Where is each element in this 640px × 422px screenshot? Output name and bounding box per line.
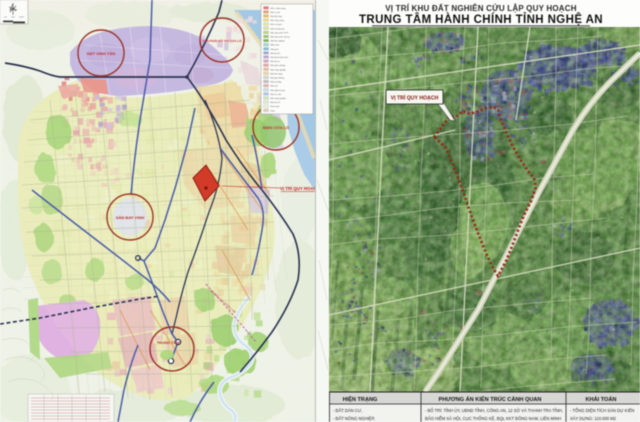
svg-text:Khác: Khác (271, 110, 276, 112)
svg-text:TRUNG TÂM: TRUNG TÂM (157, 340, 180, 345)
svg-text:Đất y tế: Đất y tế (271, 85, 279, 88)
svg-text:Đất kho tàng: Đất kho tàng (271, 72, 284, 75)
svg-text:Đất du lịch: Đất du lịch (271, 52, 282, 55)
svg-text:KĐT VINH TÂN: KĐT VINH TÂN (87, 51, 115, 56)
svg-text:Đất dự trữ: Đất dự trữ (271, 101, 281, 104)
svg-text:PHƯƠNG ÁN KIẾN TRÚC CẢNH QUAN: PHƯƠNG ÁN KIẾN TRÚC CẢNH QUAN (439, 396, 542, 403)
svg-text:KHÁI TOÁN: KHÁI TOÁN (586, 396, 617, 403)
svg-text:- ĐẤT NÔNG NGHIỆP,: - ĐẤT NÔNG NGHIỆP, (333, 416, 375, 421)
svg-text:Đất cây xanh TDTT: Đất cây xanh TDTT (271, 31, 290, 34)
svg-text:Đất hỗn hợp: Đất hỗn hợp (271, 15, 283, 18)
svg-text:Đất hạ tầng: Đất hạ tầng (271, 81, 283, 84)
svg-text:VỊ TRÍ QUY HOẠCH: VỊ TRÍ QUY HOẠCH (280, 186, 320, 191)
svg-text:Đất nghĩa trang: Đất nghĩa trang (271, 89, 286, 92)
svg-text:TRUNG TÂM HÀNH CHÍNH TỈNH NGHỆ: TRUNG TÂM HÀNH CHÍNH TỈNH NGHỆ AN (359, 13, 603, 26)
svg-text:Đất ở hiện trạng: Đất ở hiện trạng (271, 7, 287, 10)
svg-text:Ranh giới: Ranh giới (271, 106, 281, 108)
svg-text:- TỔNG DIỆN TÍCH SÀN DỰ KIẾN: - TỔNG DIỆN TÍCH SÀN DỰ KIẾN (570, 408, 634, 413)
svg-text:BIỂN CỬA LÒ: BIỂN CỬA LÒ (263, 125, 289, 130)
svg-text:Sông hồ: Sông hồ (271, 48, 280, 51)
svg-text:VỊ TRÍ KHU ĐẤT NGHIÊN CỨU LẬP: VỊ TRÍ KHU ĐẤT NGHIÊN CỨU LẬP QUY HOẠCH (385, 3, 577, 13)
svg-text:SÂN BAY VINH: SÂN BAY VINH (116, 215, 144, 220)
svg-text:Đất giao thông: Đất giao thông (271, 77, 285, 80)
svg-text:VỊ TRÍ QUY HOẠCH: VỊ TRÍ QUY HOẠCH (391, 94, 439, 102)
svg-text:Đất trường học: Đất trường học (271, 27, 285, 30)
svg-text:HIỆN TRẠNG: HIỆN TRẠNG (343, 395, 378, 403)
svg-text:Đất an ninh: Đất an ninh (271, 93, 282, 96)
svg-text:BẢO HIỂM XÃ HỘI, CỤC THỐNG KÊ,: BẢO HIỂM XÃ HỘI, CỤC THỐNG KÊ, BQL KKT Đ… (425, 416, 561, 421)
svg-text:Đất công cộng: Đất công cộng (271, 19, 285, 22)
svg-text:Đất cơ quan: Đất cơ quan (271, 23, 283, 26)
svg-text:Đất ở mới: Đất ở mới (271, 11, 281, 14)
svg-text:Đất quốc phòng: Đất quốc phòng (271, 64, 287, 67)
svg-text:Đất nông nghiệp: Đất nông nghiệp (271, 97, 287, 100)
svg-text:XÂY DỰNG: 110.000 M2: XÂY DỰNG: 110.000 M2 (570, 416, 617, 421)
svg-text:Đất công nghiệp: Đất công nghiệp (271, 68, 287, 71)
svg-text:Đất cây xanh cách ly: Đất cây xanh cách ly (271, 36, 291, 39)
svg-text:- ĐẤT DÂN CƯ,: - ĐẤT DÂN CƯ, (333, 408, 362, 413)
svg-text:Đất dự án: Đất dự án (271, 60, 281, 63)
svg-text:Đất đô thị hiện hữu: Đất đô thị hiện hữu (271, 56, 290, 59)
svg-text:Mặt nước: Mặt nước (271, 44, 280, 47)
svg-text:Đất lâm nghiệp: Đất lâm nghiệp (271, 40, 286, 43)
svg-text:TÂN PHỔI ĐÔ THỊ CỬA LÒ: TÂN PHỔI ĐÔ THỊ CỬA LÒ (202, 38, 242, 43)
svg-text:- BỐ TRÍ: TỈNH ỦY, UBND TỈNH,: - BỐ TRÍ: TỈNH ỦY, UBND TỈNH, CÔNG AN, 1… (425, 408, 563, 413)
